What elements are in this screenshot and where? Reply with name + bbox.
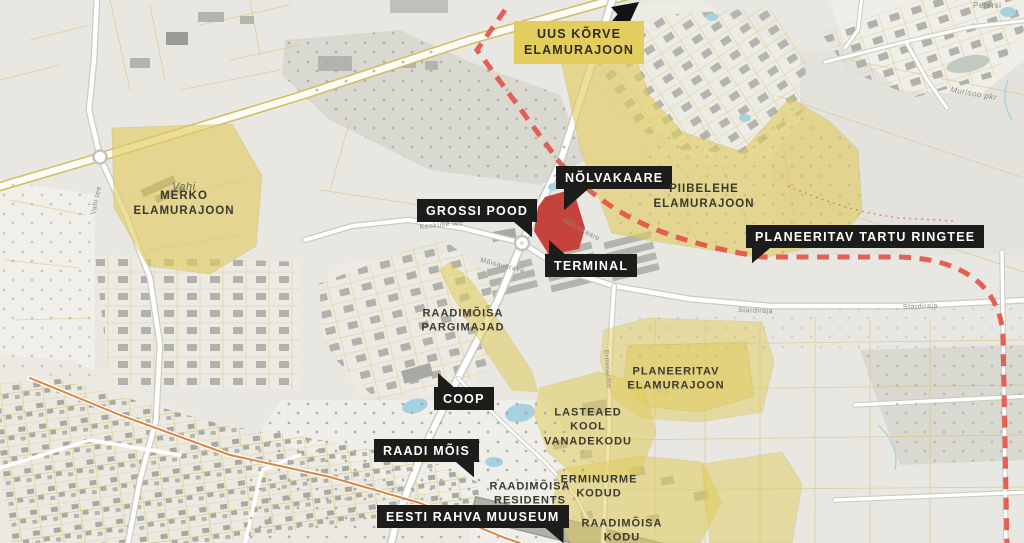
callout-text: EESTI RAHVA MUUSEUM <box>386 510 560 524</box>
area-label-line: RAADIMÕISA <box>421 307 504 321</box>
area-label-line: MERKO <box>133 189 234 204</box>
area-label-line: KODU <box>582 531 663 543</box>
callout-uus-korve: UUS KÕRVE ELAMURAJOON <box>514 21 644 64</box>
area-label-piibelehe: PIIBELEHE ELAMURAJOON <box>653 182 754 212</box>
area-label-line: ELAMURAJOON <box>133 204 234 219</box>
callout-line: UUS KÕRVE <box>524 26 634 42</box>
street-label: Stardiraja <box>738 307 773 315</box>
callout-text: GROSSI POOD <box>426 204 528 218</box>
area-label-erminurme: ERMINURME KODUD <box>561 473 638 502</box>
area-label-line: RESIDENTS <box>490 494 571 508</box>
area-label-line: PIIBELEHE <box>653 182 754 197</box>
area-label-line: KODUD <box>561 487 638 501</box>
development-map: Vahi tee Keskuse tee Nõlvakaare Mõisavär… <box>0 0 1024 543</box>
callout-text: COOP <box>443 392 485 406</box>
raadimoisa-kodu-area <box>702 452 802 543</box>
callout-terminal: TERMINAL <box>545 254 637 277</box>
map-canvas: Vahi tee Keskuse tee Nõlvakaare Mõisavär… <box>0 0 1024 543</box>
area-label-pargimajad: RAADIMÕISA PARGIMAJAD <box>421 307 504 336</box>
callout-text: PLANEERITAV TARTU RINGTEE <box>755 230 975 244</box>
area-label-line: ELAMURAJOON <box>627 379 724 393</box>
area-label-lasteaed: LASTEAED KOOL VANADEKODU <box>544 406 632 449</box>
area-label-line: KOOL <box>544 420 632 434</box>
area-label-line: ERMINURME <box>561 473 638 487</box>
callout-line: ELAMURAJOON <box>524 42 634 58</box>
callout-grossi-pood: GROSSI POOD <box>417 199 537 222</box>
street-label: Stardiraja <box>903 303 938 311</box>
callout-tartu-ringtee: PLANEERITAV TARTU RINGTEE <box>746 225 984 248</box>
callout-text: RAADI MÕIS <box>383 444 470 458</box>
area-label-line: VANADEKODU <box>544 434 632 448</box>
street-label: Petersi <box>973 1 1001 10</box>
callout-eesti-rahva-muuseum: EESTI RAHVA MUUSEUM <box>377 505 569 528</box>
area-label-kodu: RAADIMÕISA KODU <box>582 517 663 543</box>
area-label-planeeritav: PLANEERITAV ELAMURAJOON <box>627 365 724 394</box>
callout-raadi-mois: RAADI MÕIS <box>374 439 479 462</box>
callout-text: TERMINAL <box>554 259 628 273</box>
area-label-line: RAADIMÕISA <box>582 517 663 531</box>
callout-text: NÕLVAKAARE <box>565 171 663 185</box>
area-label-line: LASTEAED <box>544 406 632 420</box>
area-label-line: PLANEERITAV <box>627 365 724 379</box>
callout-coop: COOP <box>434 387 494 410</box>
area-label-line: RAADIMÕISA <box>490 480 571 494</box>
area-label-line: PARGIMAJAD <box>421 321 504 335</box>
area-label-line: ELAMURAJOON <box>653 197 754 212</box>
area-label-residents: RAADIMÕISA RESIDENTS <box>490 480 571 509</box>
area-label-merko: MERKO ELAMURAJOON <box>133 189 234 219</box>
